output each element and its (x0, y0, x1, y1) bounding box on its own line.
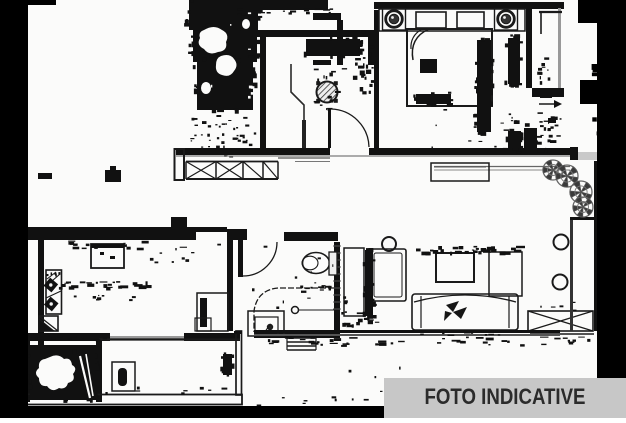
svg-text:FOTO INDICATIVE: FOTO INDICATIVE (425, 384, 586, 409)
